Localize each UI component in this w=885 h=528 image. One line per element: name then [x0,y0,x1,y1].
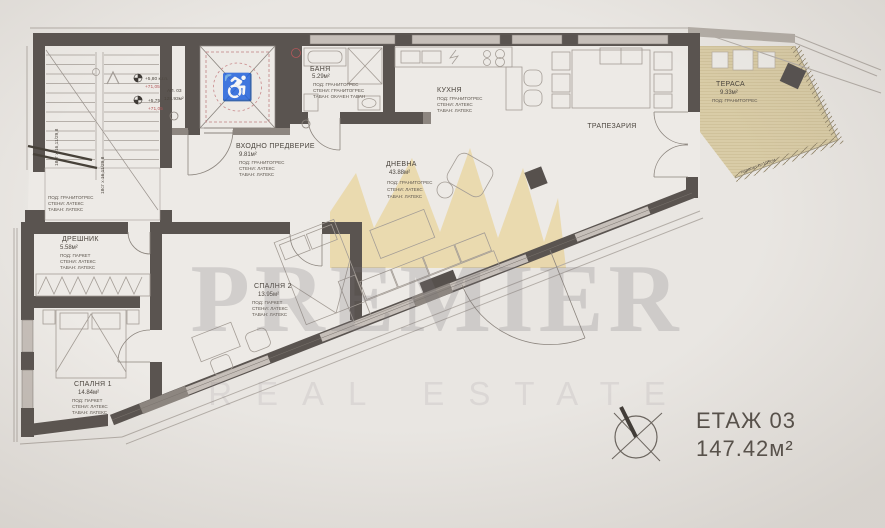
watermark: PREMIER REAL ESTATE [190,245,689,412]
room-bath-walls: СТЕНИ: ГРАНИТОГРЕС [313,88,365,93]
window [22,320,33,352]
room-terrace-name: ТЕРАСА [716,81,745,88]
room-closet-area: 5.58м² [60,245,78,251]
window [22,370,33,412]
room-kitchen-floor: ПОД: ГРАНИТОГРЕС [437,96,483,101]
room-entry-floor: ПОД: ГРАНИТОГРЕС [239,160,285,165]
level-mark-2-alt: +71,05 [148,106,163,112]
room-living-walls: СТЕНИ: ЛАТЕКС [387,187,423,192]
room-bath-ceiling: ТАВАН: ОКАЧЕН ТАВАН [313,94,365,99]
room-bedroom1-ceiling: ТАВАН: ЛАТЕКС [72,410,108,415]
stairs-walls: СТЕНИ: ЛАТЕКС [48,201,84,206]
room-bedroom1-floor: ПОД: ПАРКЕТ [72,398,103,403]
floor-plan-drawing: ♿ [0,0,885,528]
stairs-ceiling: ТАВАН: ЛАТЕКС [48,207,84,212]
room-closet-walls: СТЕНИ: ЛАТЕКС [60,259,96,264]
room-bedroom1-walls: СТЕНИ: ЛАТЕКС [72,404,108,409]
apartment-area: 128.93м² [164,96,184,102]
window [512,35,562,44]
room-kitchen-walls: СТЕНИ: ЛАТЕКС [437,102,473,107]
room-entry-name: ВХОДНО ПРЕДВЕРИЕ [236,143,315,150]
room-closet-ceiling: ТАВАН: ЛАТЕКС [60,265,96,270]
room-terrace-area: 9.33м² [720,90,738,96]
floor-label: ЕТАЖ 03 [696,408,796,433]
apartment-label: АП. 03 [167,88,182,94]
floor-plan-canvas: ♿ [0,0,885,528]
room-living-floor: ПОД: ГРАНИТОГРЕС [387,180,433,185]
room-kitchen-name: КУХНЯ [437,87,462,94]
watermark-tagline: REAL ESTATE [208,375,690,412]
room-closet-floor: ПОД: ПАРКЕТ [60,253,91,258]
room-terrace-floor: ПОД: ГРАНИТОГРЕС [712,98,758,103]
room-bedroom1-area: 14.84м² [78,390,99,396]
stairs-floor: ПОД: ГРАНИТОГРЕС [48,195,94,200]
room-entry-ceiling: ТАВАН: ЛАТЕКС [239,172,275,177]
room-entry-area: 9.81м² [239,152,257,158]
level-mark-1: +5,80 к.г.п. [145,76,168,82]
window [578,35,668,44]
window [310,35,395,44]
window [412,35,500,44]
level-mark-1-alt: +71,05 [145,84,160,90]
terrace-planter [733,50,753,70]
room-dining-name: ТРАПЕЗАРИЯ [587,123,636,130]
room-living-ceiling: ТАВАН: ЛАТЕКС [387,194,423,199]
room-bedroom1-name: СПАЛНЯ 1 [74,381,112,388]
room-kitchen-ceiling: ТАВАН: ЛАТЕКС [437,108,473,113]
stair-flight1-label: 18ст x 16,11/29,8 [54,128,60,166]
room-entry-walls: СТЕНИ: ЛАТЕКС [239,166,275,171]
room-closet-name: ДРЕШНИК [62,236,99,243]
room-living-name: ДНЕВНА [386,161,417,168]
wheelchair-accessible-icon: ♿ [221,72,253,102]
floor-total-area: 147.42м² [696,436,794,461]
terrace-planter [712,52,728,68]
level-mark-2: +5,75 [148,98,160,104]
stair-flight2-label: 18ст x 16,11/29,8 [100,156,106,194]
room-bath-area: 5.29м² [312,74,330,80]
room-bath-floor: ПОД: ГРАНИТОГРЕС [313,82,359,87]
watermark-brand: PREMIER [190,245,683,352]
room-bath-name: БАНЯ [310,66,330,73]
room-living-area: 43.88м² [389,170,410,176]
